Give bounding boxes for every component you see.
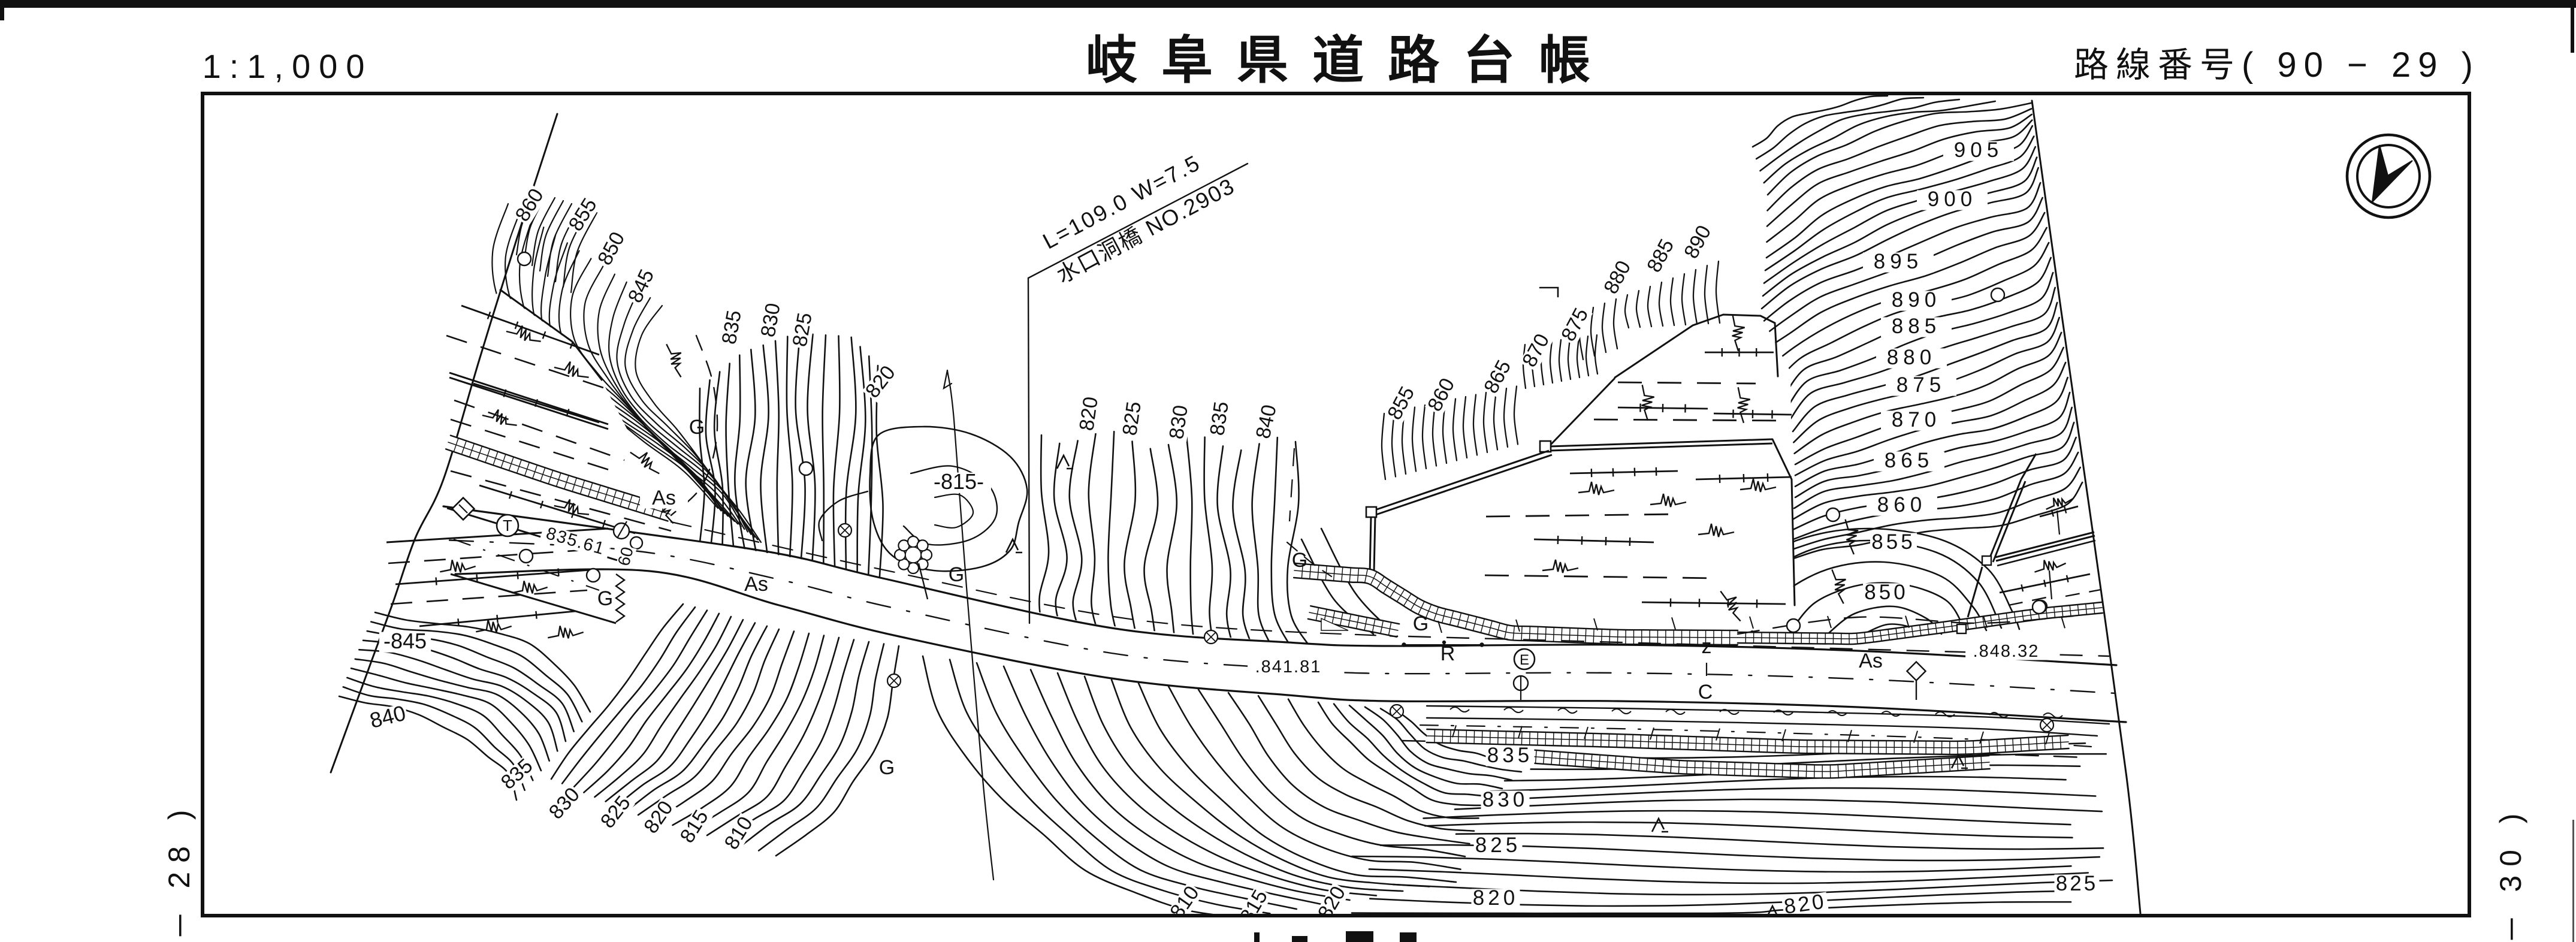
- svg-text:C: C: [1698, 681, 1713, 704]
- svg-text:835: 835: [1487, 744, 1533, 767]
- svg-text:820: 820: [1075, 395, 1103, 432]
- svg-text:820: 820: [1473, 886, 1518, 910]
- svg-text:G: G: [597, 587, 613, 610]
- svg-text:825: 825: [1475, 834, 1521, 857]
- svg-text:路線番号( 90 − 29 ): 路線番号( 90 − 29 ): [2074, 46, 2480, 84]
- svg-text:-845: -845: [383, 629, 427, 653]
- svg-text:岐阜県道路台帳: 岐阜県道路台帳: [1086, 32, 1614, 89]
- svg-text:E: E: [1520, 652, 1529, 668]
- svg-text:835: 835: [1206, 400, 1233, 437]
- svg-text:G: G: [1413, 612, 1429, 635]
- svg-text:830: 830: [1482, 788, 1528, 811]
- svg-text:G: G: [1292, 549, 1307, 572]
- svg-text:.841.81: .841.81: [1255, 657, 1322, 677]
- svg-text:870: 870: [1892, 408, 1941, 431]
- svg-text:860: 860: [1877, 493, 1926, 517]
- svg-text:865: 865: [1885, 449, 1934, 472]
- svg-text:825: 825: [1118, 400, 1146, 437]
- svg-text:G: G: [879, 756, 895, 779]
- svg-text:890: 890: [1892, 288, 1941, 312]
- svg-text:G: G: [949, 563, 964, 586]
- svg-text:As: As: [744, 573, 768, 596]
- svg-text:885: 885: [1892, 315, 1941, 338]
- svg-text:855: 855: [1871, 530, 1915, 554]
- svg-text:900: 900: [1928, 188, 1977, 211]
- svg-text:─ 28 ): ─ 28 ): [162, 801, 196, 937]
- svg-text:-815-: -815-: [934, 469, 984, 494]
- svg-text:─ 30 ): ─ 30 ): [2494, 805, 2527, 940]
- svg-text:T: T: [503, 517, 512, 535]
- svg-text:R: R: [1440, 642, 1455, 665]
- svg-text:905: 905: [1954, 138, 2003, 162]
- svg-text:.848.32: .848.32: [1973, 642, 2040, 661]
- svg-text:875: 875: [1896, 373, 1946, 397]
- svg-text:z: z: [1702, 635, 1712, 658]
- svg-text:880: 880: [1887, 346, 1936, 369]
- svg-text:895: 895: [1874, 250, 1923, 273]
- svg-text:1:1,000: 1:1,000: [203, 47, 373, 85]
- svg-text:825: 825: [2056, 872, 2098, 895]
- svg-text:850: 850: [1864, 581, 1908, 604]
- svg-text:As: As: [652, 487, 676, 509]
- svg-text:830: 830: [1165, 404, 1192, 440]
- svg-text:G: G: [689, 416, 705, 439]
- svg-text:As: As: [1859, 650, 1883, 672]
